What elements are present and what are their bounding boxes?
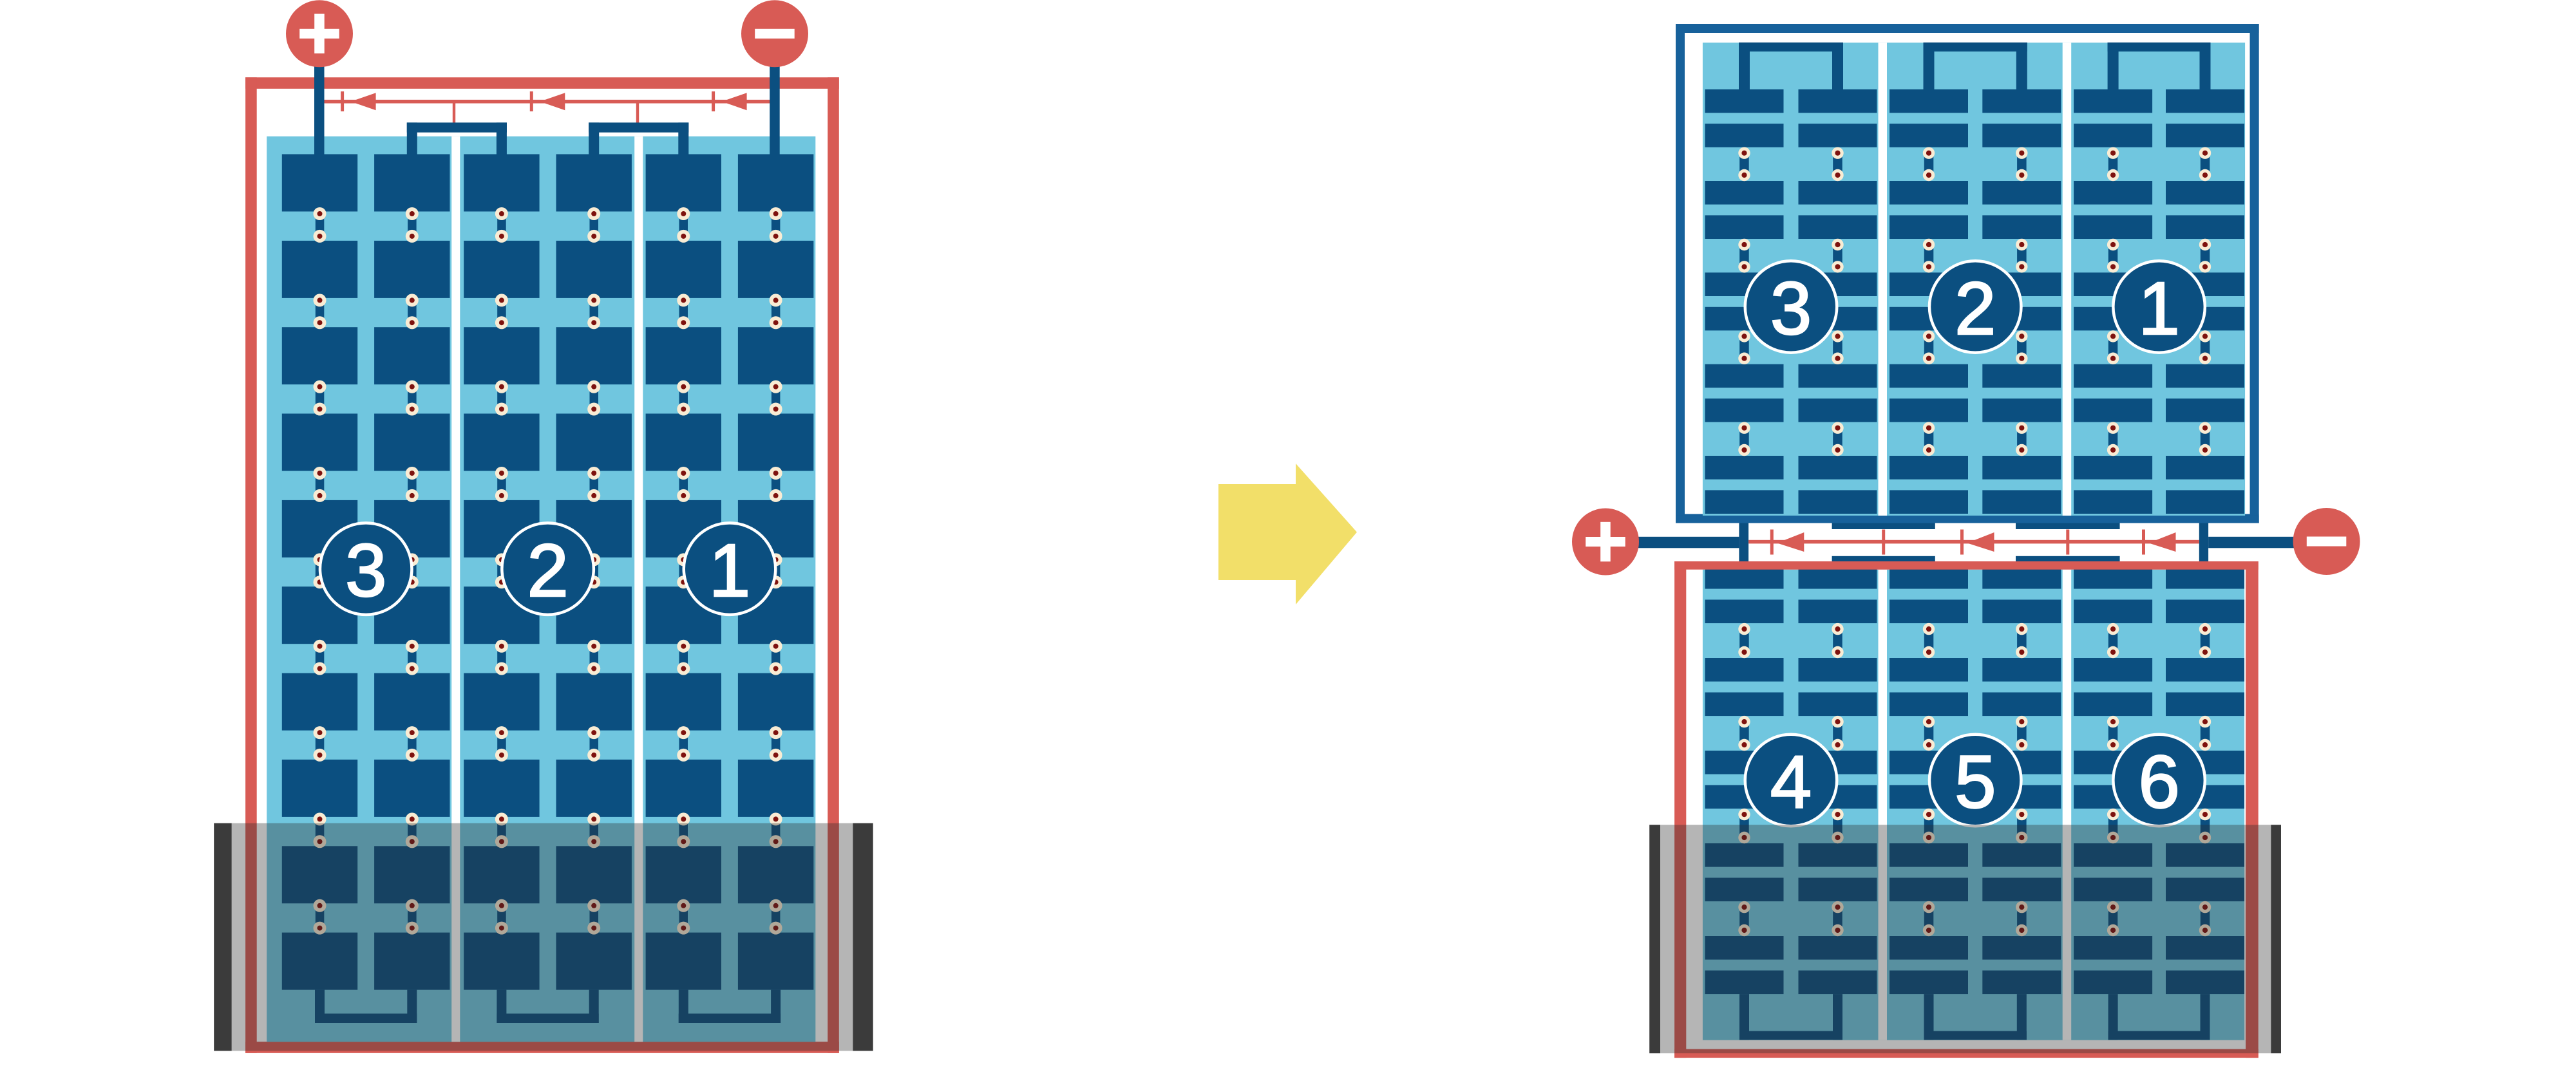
svg-text:3: 3 bbox=[1770, 267, 1812, 350]
svg-text:6: 6 bbox=[2138, 740, 2180, 823]
svg-text:2: 2 bbox=[1955, 267, 1996, 350]
svg-text:3: 3 bbox=[345, 529, 387, 612]
svg-text:2: 2 bbox=[527, 529, 569, 612]
svg-text:5: 5 bbox=[1955, 740, 1996, 823]
svg-text:1: 1 bbox=[709, 529, 751, 612]
svg-text:4: 4 bbox=[1770, 740, 1812, 823]
svg-text:1: 1 bbox=[2138, 267, 2180, 350]
